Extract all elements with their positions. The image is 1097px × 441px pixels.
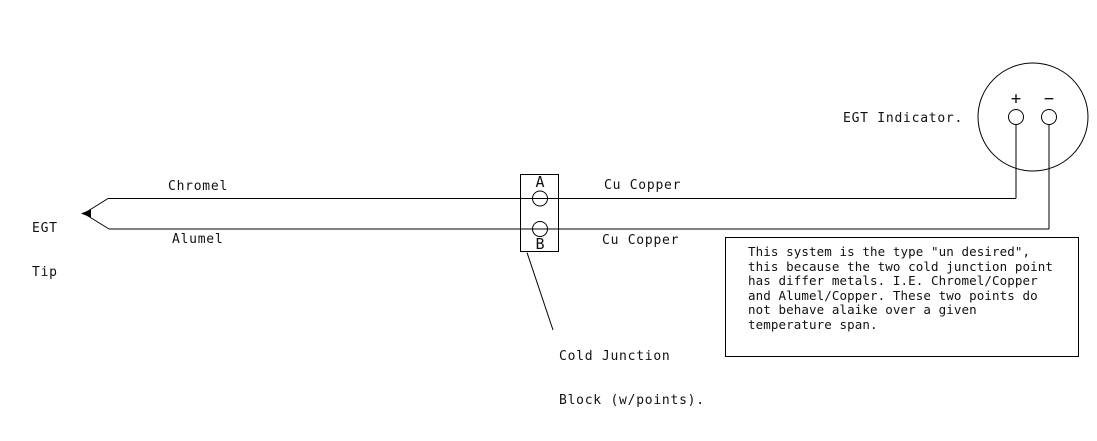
terminal-a-label: A <box>531 175 549 190</box>
plus-sign-icon: + <box>1008 91 1024 108</box>
diagram-canvas: EGT Tip Chromel Alumel Cu Copper Cu Copp… <box>0 0 1097 441</box>
egt-indicator-label: EGT Indicator. <box>843 112 963 127</box>
egt-tip-label-line2: Tip <box>32 266 66 281</box>
note-line: This system is the type "un desired", <box>748 245 1078 260</box>
note-box: This system is the type "un desired", th… <box>725 237 1079 357</box>
block-label-leader-line <box>527 253 553 331</box>
wiring-diagram-svg <box>0 0 1097 441</box>
chromel-wire-label: Chromel <box>168 180 228 195</box>
egt-indicator-circle <box>978 63 1088 171</box>
note-line: this because the two cold junction point <box>748 260 1078 275</box>
cu-copper-bottom-label: Cu Copper <box>602 234 679 249</box>
egt-tip-label: EGT Tip <box>32 193 66 309</box>
egt-tip-arrow-icon <box>81 210 91 218</box>
note-line: has differ metals. I.E. Chromel/Copper <box>748 274 1078 289</box>
negative-terminal-circle <box>1042 110 1057 125</box>
egt-tip-label-line1: EGT <box>32 222 66 237</box>
cu-copper-top-label: Cu Copper <box>604 179 681 194</box>
note-line: and Alumel/Copper. These two points do <box>748 289 1078 304</box>
note-line: not behave alaike over a given <box>748 303 1078 318</box>
cold-junction-block-label-line1: Cold Junction <box>559 350 705 365</box>
note-line: temperature span. <box>748 318 1078 333</box>
positive-terminal-circle <box>1009 110 1024 125</box>
terminal-b-label: B <box>531 237 549 252</box>
minus-sign-icon: − <box>1041 91 1057 108</box>
alumel-wire-label: Alumel <box>172 233 223 248</box>
cold-junction-block-label: Cold Junction Block (w/points). <box>559 321 705 437</box>
cold-junction-block-label-line2: Block (w/points). <box>559 394 705 409</box>
